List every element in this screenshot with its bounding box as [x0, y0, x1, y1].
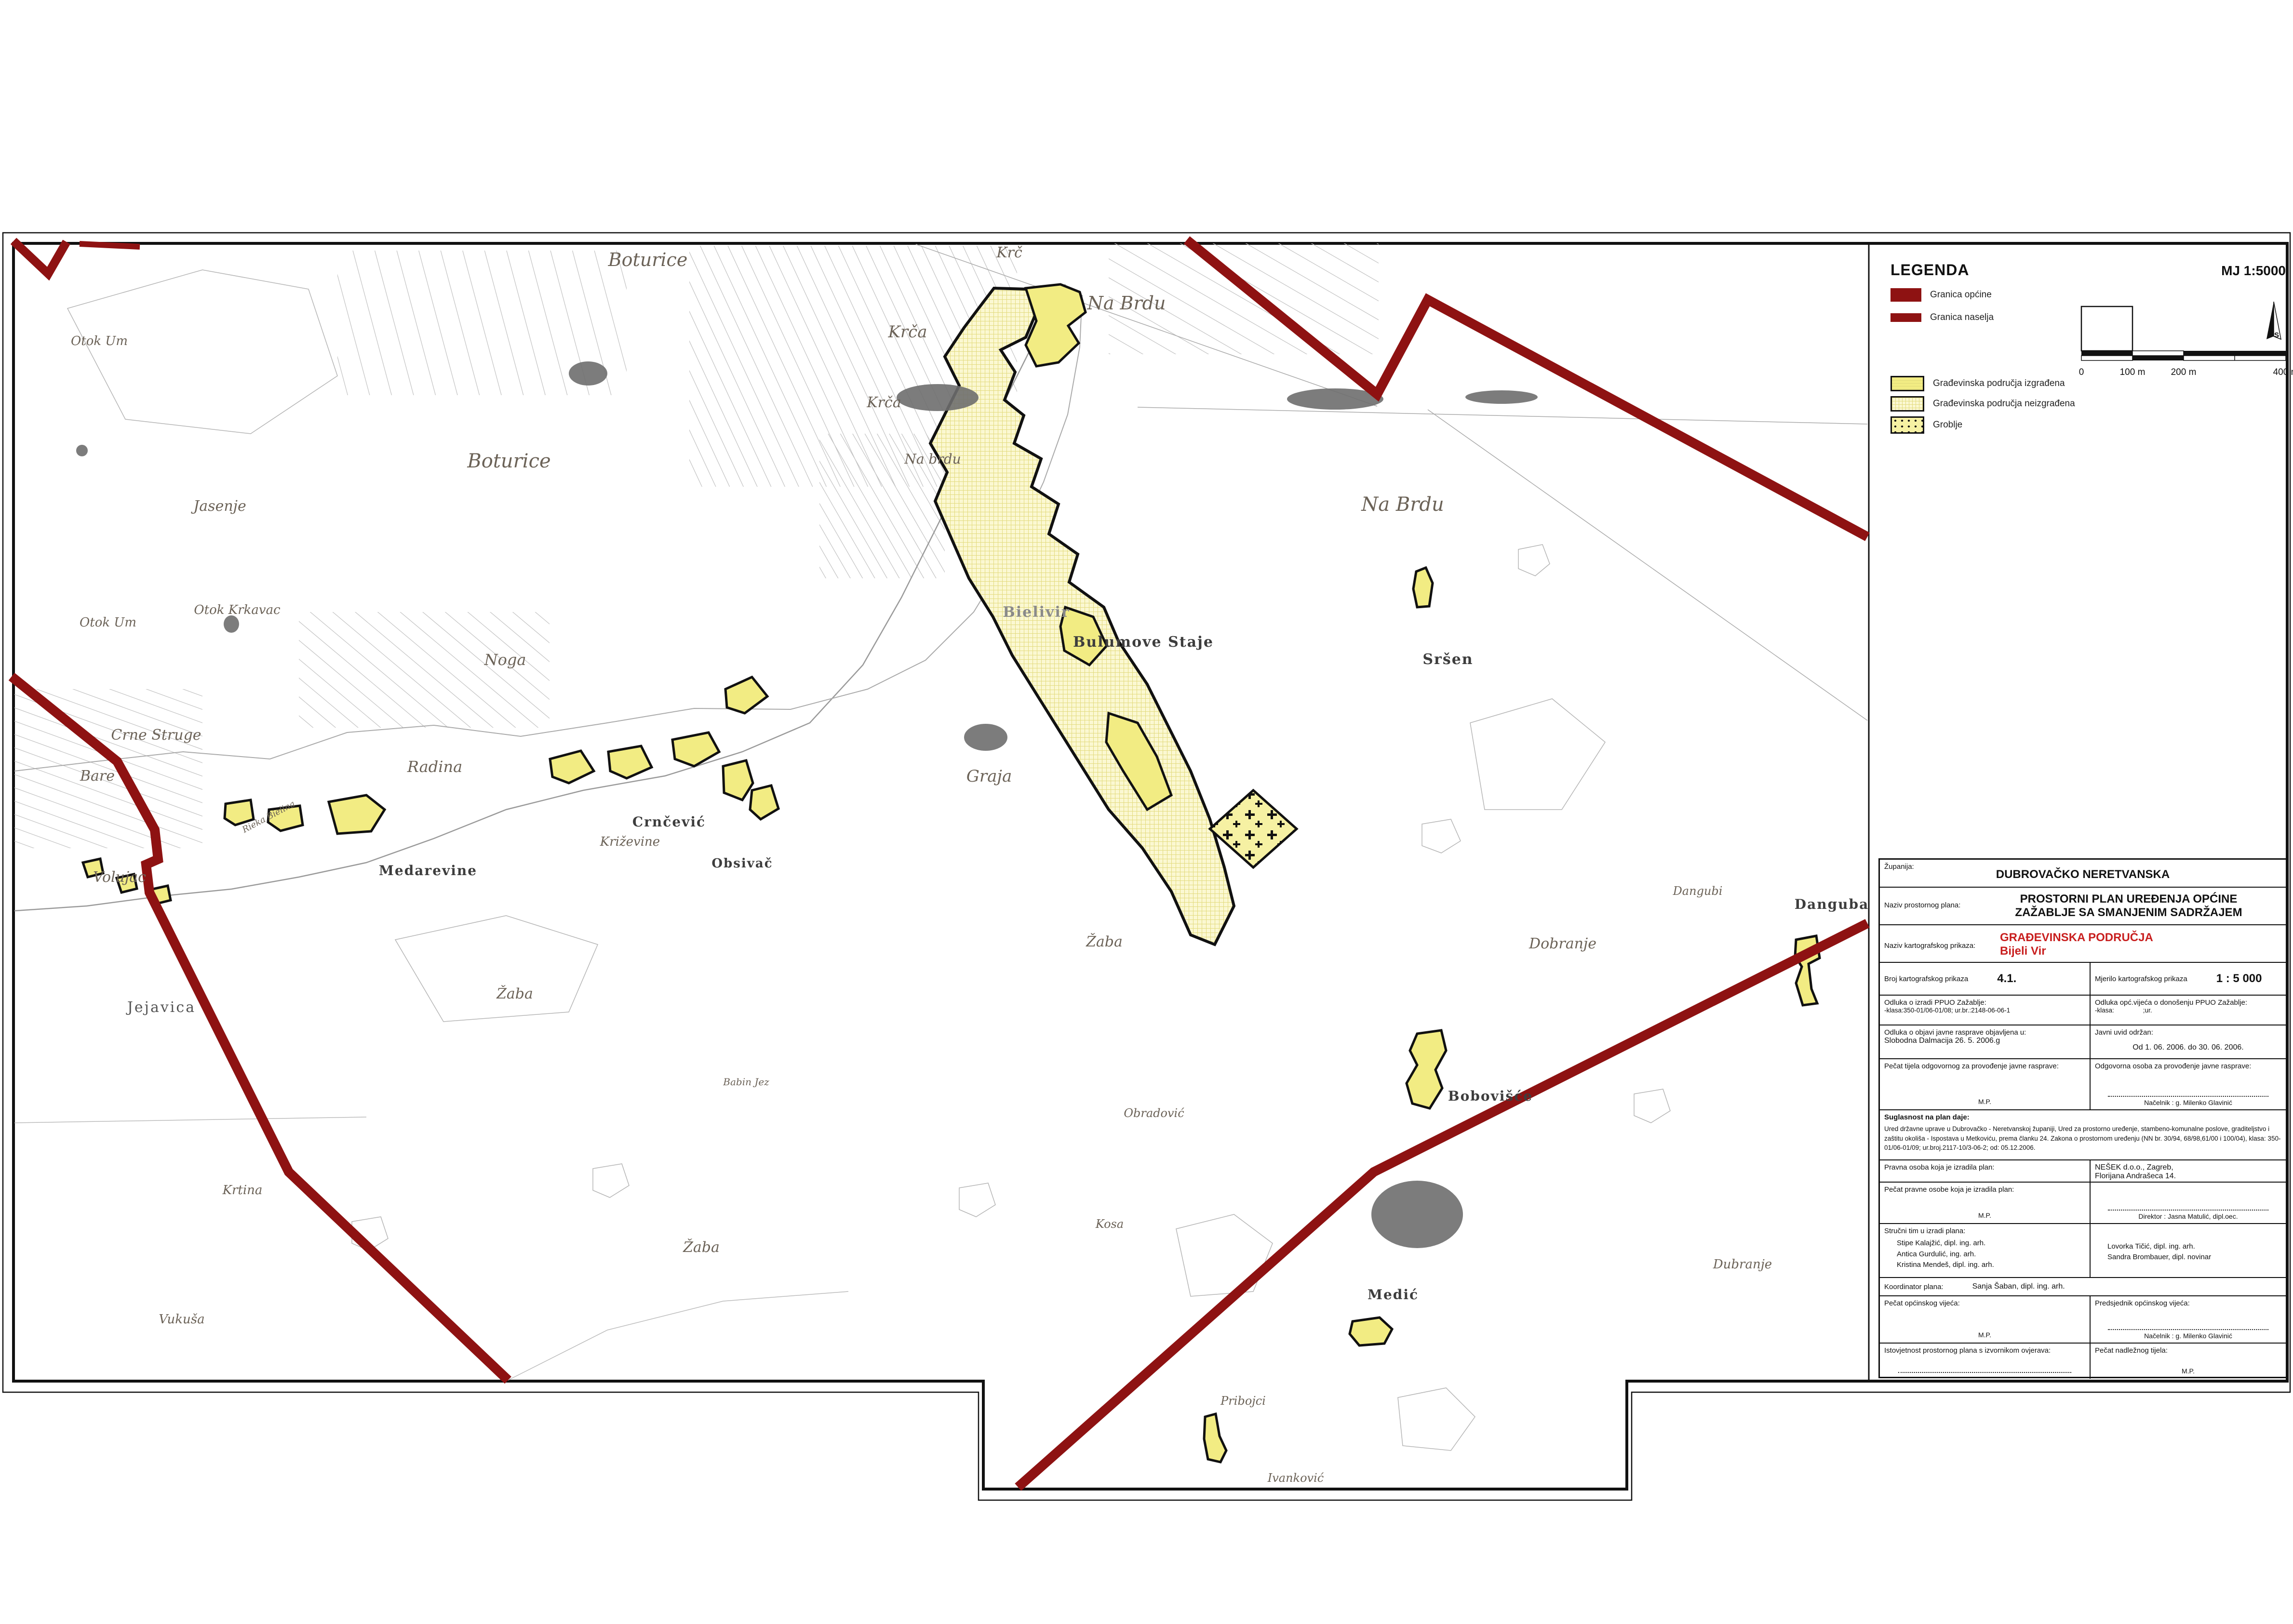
map-label: Bare [80, 768, 115, 785]
legend-item-groblje: Groblje [1891, 416, 1962, 434]
map-label: Krtina [222, 1183, 263, 1198]
map-label: Na Brdu [1361, 493, 1444, 516]
suglasnost-label: Suglasnost na plan daje: [1884, 1113, 2281, 1121]
predsjednik-label: Predsjednik općinskog vijeća: [2095, 1299, 2281, 1307]
team-member-name: Sandra Brombauer, dipl. novinar [2107, 1252, 2281, 1263]
naziv-plana-line1: PROSTORNI PLAN UREĐENJA OPĆINE [1976, 892, 2281, 906]
table-row: Istovjetnost prostornog plana s izvornik… [1880, 1344, 2286, 1379]
istovjetnost-label: Istovjetnost prostornog plana s izvornik… [1884, 1346, 2085, 1355]
map-label: Crne Struge [111, 727, 201, 744]
stamp-placeholder: M.P. [1884, 1211, 2085, 1220]
parcel-outline [1470, 699, 1605, 810]
table-row: Broj kartografskog prikaza 4.1. Mjerilo … [1880, 963, 2286, 996]
stamp-placeholder: M.P. [2095, 1367, 2281, 1376]
map-label: Žaba [496, 985, 533, 1002]
built-area-polygon [750, 785, 778, 819]
map-label: Sršen [1422, 651, 1473, 668]
pecat-tijela-label: Pečat nadležnog tijela: [2095, 1346, 2281, 1355]
map-label: Graja [966, 767, 1012, 786]
legend-scale-ratio: MJ 1:5000 [2159, 263, 2286, 279]
map-canvas: BoturiceKrčNa BrduKrčaKrčaNa brduBielivi… [0, 0, 2293, 1624]
pravna-line1: NEŠEK d.o.o., Zagreb, [2095, 1163, 2281, 1172]
nacelnik-name: Načelnik : g. Milenko Glavinić [2095, 1099, 2281, 1106]
map-label: Dangubi [1673, 884, 1723, 898]
legend-item-label: Građevinska područja izgrađena [1933, 378, 2065, 389]
map-label: Medić [1368, 1287, 1419, 1303]
mjerilo-label: Mjerilo kartografskog prikaza [2095, 975, 2187, 983]
signature-line [2108, 1210, 2268, 1211]
naziv-plana-label: Naziv prostornog plana: [1884, 901, 1960, 909]
map-label: Otok Um [71, 334, 128, 348]
naziv-prikaza-line1: GRAĐEVINSKA PODRUČJA [2000, 931, 2281, 945]
odluka-donosenje-value: -klasa: ;ur. [2095, 1007, 2281, 1014]
map-label: Radina [407, 758, 462, 776]
map-label: Križevine [600, 835, 660, 849]
built-area-polygon [1350, 1318, 1392, 1345]
map-label: Kosa [1095, 1217, 1124, 1231]
grey-terrain-blob [897, 384, 979, 411]
legend-item-label: Građevinska područja neizgrađena [1933, 399, 2075, 409]
table-row: Suglasnost na plan daje: Ured državne up… [1880, 1110, 2286, 1160]
signature-line [1898, 1372, 2071, 1373]
map-label: Jejavica [126, 999, 196, 1016]
legend-item-label: Groblje [1933, 420, 1962, 430]
stamp-placeholder: M.P. [1884, 1098, 2085, 1106]
mjerilo-value: 1 : 5 000 [2216, 972, 2262, 985]
odluka-donosenje-label: Odluka opć.vijeća o donošenju PPUO Zažab… [2095, 998, 2281, 1007]
table-row: Pečat tijela odgovornog za provođenje ja… [1880, 1059, 2286, 1110]
map-label: Bielivir [1003, 604, 1070, 621]
parcel-outline [1422, 819, 1461, 853]
legend-item-granica-naselja: Granica naselja [1891, 312, 1994, 323]
map-road-line [1138, 407, 1867, 424]
municipal-boundary [80, 244, 140, 247]
suglasnost-text: Ured državne uprave u Dubrovačko - Neret… [1884, 1124, 2281, 1153]
map-label: Pribojci [1220, 1394, 1266, 1408]
odluka-izrada-label: Odluka o izradi PPUO Zažablje: [1884, 998, 2085, 1007]
parcel-outline [1398, 1388, 1475, 1451]
objava-value: Slobodna Dalmacija 26. 5. 2006.g [1884, 1037, 2085, 1045]
map-layers: BoturiceKrčNa BrduKrčaKrčaNa brduBielivi… [0, 0, 1869, 1487]
parcel-outline [1634, 1089, 1670, 1123]
map-label: Boturice [608, 249, 688, 270]
koordinator-label: Koordinator plana: [1884, 1283, 1944, 1291]
hatch-lines [90, 0, 1616, 1125]
municipal-boundary [13, 241, 67, 274]
map-road-line [14, 1117, 366, 1123]
map-label: Na Brdu [1087, 293, 1166, 314]
map-label: Krč [996, 244, 1022, 261]
map-label: Volujac [93, 869, 146, 886]
team-member-name: Kristina Mendeš, dipl. ing. arh. [1897, 1260, 2085, 1271]
cemetery-area [1210, 790, 1297, 867]
objava-label: Odluka o objavi javne rasprave objavljen… [1884, 1028, 2085, 1037]
built-area-polygon [1413, 568, 1433, 607]
legend-item-label: Granica naselja [1930, 312, 1994, 323]
tim-label: Stručni tim u izradi plana: [1884, 1227, 2085, 1235]
municipal-boundary [1187, 240, 1867, 537]
legend-item-izgradena: Građevinska područja izgrađena [1891, 376, 2065, 391]
uvid-label: Javni uvid održan: [2095, 1028, 2281, 1037]
zupanija-value: DUBROVAČKO NERETVANSKA [1884, 868, 2281, 881]
tim-right-names: Lovorka Tičić, dipl. ing. arh.Sandra Bro… [2107, 1241, 2281, 1263]
naziv-prikaza-label: Naziv kartografskog prikaza: [1884, 942, 1975, 950]
hatch-lines [0, 146, 947, 1193]
table-row: Koordinator plana: Sanja Šaban, dipl. in… [1880, 1278, 2286, 1296]
built-area-swatch [1891, 376, 1924, 391]
map-label: Otok Um [80, 615, 136, 630]
map-label: Jasenje [190, 498, 246, 515]
built-area-polygon [1026, 284, 1086, 366]
map-label: Krča [866, 394, 901, 411]
table-row: Pečat općinskog vijeća: M.P. Predsjednik… [1880, 1296, 2286, 1344]
team-member-name: Antica Gurdulić, ing. arh. [1897, 1249, 2085, 1260]
parcel-outline [1176, 1214, 1273, 1296]
map-label: Danguba [1795, 896, 1869, 912]
grey-terrain-blob [964, 724, 1007, 751]
grey-terrain-blob [76, 445, 88, 456]
map-label: Žaba [1086, 933, 1123, 950]
map-label: Dubranje [1713, 1257, 1772, 1272]
legend-item-label: Granica općine [1930, 290, 1992, 300]
map-label: Obradović [1124, 1106, 1184, 1120]
parcel-outline [67, 270, 337, 434]
broj-label: Broj kartografskog prikaza [1884, 975, 1968, 983]
uvid-value: Od 1. 06. 2006. do 30. 06. 2006. [2095, 1043, 2281, 1052]
map-label: Medarevine [379, 863, 477, 879]
map-label: Vukuša [159, 1312, 204, 1327]
scalebar-tick-100: 100 m [2120, 367, 2145, 377]
signature-line [2108, 1329, 2268, 1330]
map-label: Krča [888, 322, 927, 342]
grey-terrain-blob [224, 615, 239, 633]
pecat-pravne-label: Pečat pravne osobe koja je izradila plan… [1884, 1185, 2085, 1194]
map-road-line [14, 284, 1065, 911]
legend-item-granica-opcine: Granica općine [1891, 288, 1992, 302]
signature-line [2108, 1096, 2268, 1097]
pecat-vijeca-label: Pečat općinskog vijeća: [1884, 1299, 2085, 1307]
built-area-polygon [725, 677, 767, 713]
map-label: Dobranje [1529, 935, 1596, 952]
legend-item-neizgradena: Građevinska područja neizgrađena [1891, 396, 2075, 412]
direktor-name: Direktor : Jasna Matulić, dipl.oec. [2095, 1212, 2281, 1220]
map-label: Crnčević [632, 814, 706, 830]
scalebar-tick-200: 200 m [2171, 367, 2197, 377]
map-sheet: BoturiceKrčNa BrduKrčaKrčaNa brduBielivi… [0, 0, 2293, 1624]
map-label: Boturice [467, 450, 550, 472]
scalebar-tick-400: 400 m [2273, 367, 2293, 377]
map-label: Noga [484, 651, 526, 669]
built-area-polygon [329, 795, 385, 834]
map-road-line [1428, 410, 1867, 720]
parcel-outline [395, 916, 598, 1022]
map-label: Bulumove Staje [1073, 634, 1214, 651]
map-road-line [508, 1291, 848, 1380]
parcel-outline [1518, 545, 1550, 576]
stamp-placeholder: M.P. [1884, 1331, 2085, 1340]
team-member-name: Lovorka Tičić, dipl. ing. arh. [2107, 1241, 2281, 1252]
hatch-lines [717, 0, 1770, 830]
parcel-outline [959, 1183, 995, 1217]
built-area-polygon [1204, 1414, 1226, 1462]
built-area-polygon [723, 760, 753, 800]
grey-terrain-blob [1465, 390, 1538, 404]
unbuilt-area-swatch [1891, 396, 1924, 412]
cemetery-swatch [1891, 416, 1924, 434]
scalebar-tick-0: 0 [2079, 367, 2084, 377]
settlement-boundary-swatch [1891, 313, 1921, 322]
title-block-table: Županija: DUBROVAČKO NERETVANSKA Naziv p… [1878, 858, 2287, 1378]
pecat-rasprava-label: Pečat tijela odgovornog za provođenje ja… [1884, 1062, 2085, 1070]
grey-terrain-blob [569, 361, 607, 386]
table-row: Odluka o izradi PPUO Zažablje: -klasa:35… [1880, 996, 2286, 1025]
team-member-name: Stipe Kalajžić, dipl. ing. arh. [1897, 1238, 2085, 1249]
map-label: Žaba [683, 1238, 720, 1256]
odgovorna-label: Odgovorna osoba za provođenje javne rasp… [2095, 1062, 2281, 1070]
naziv-plana-line2: ZAŽABLJE SA SMANJENIM SADRŽAJEM [1976, 906, 2281, 919]
map-label: Na brdu [904, 451, 961, 467]
table-row: Pravna osoba koja je izradila plan: NEŠE… [1880, 1160, 2286, 1183]
north-arrow-label: S [2274, 331, 2279, 339]
scale-bar: 0 100 m 200 m 400 m [2079, 306, 2293, 377]
built-area-polygon [1407, 1030, 1446, 1108]
parcel-outline [593, 1164, 629, 1198]
broj-value: 4.1. [1997, 972, 2016, 985]
table-row: Odluka o objavi javne rasprave objavljen… [1880, 1025, 2286, 1059]
nacelnik-name: Načelnik : g. Milenko Glavinić [2095, 1332, 2281, 1340]
built-area-polygon [608, 746, 652, 778]
table-row: Županija: DUBROVAČKO NERETVANSKA [1880, 860, 2286, 888]
koordinator-name: Sanja Šaban, dipl. ing. arh. [1972, 1282, 2065, 1291]
grey-terrain-blob [1371, 1181, 1463, 1248]
map-label: Bobovišće [1448, 1088, 1533, 1104]
table-row: Naziv prostornog plana: PROSTORNI PLAN U… [1880, 888, 2286, 925]
table-row: Naziv kartografskog prikaza: GRAĐEVINSKA… [1880, 925, 2286, 963]
odluka-izrada-value: -klasa:350-01/06-01/08; ur.br.:2148-06-0… [1884, 1007, 2085, 1014]
map-label: Otok Krkavac [194, 603, 281, 617]
table-row: Pečat pravne osobe koja je izradila plan… [1880, 1183, 2286, 1224]
tim-left-names: Stipe Kalajžić, dipl. ing. arh.Antica Gu… [1897, 1238, 2085, 1271]
pravna-label: Pravna osoba koja je izradila plan: [1884, 1163, 2085, 1171]
built-area-polygon [550, 751, 594, 783]
table-row: Stručni tim u izradi plana: Stipe Kalajž… [1880, 1224, 2286, 1278]
map-label: Babin Jez [723, 1076, 769, 1088]
map-label: Obsivač [711, 856, 773, 871]
pravna-line2: Florijana Andrašeca 14. [2095, 1172, 2281, 1181]
north-arrow-icon: S [2266, 302, 2281, 339]
naziv-prikaza-line2: Bijeli Vir [2000, 945, 2281, 958]
map-label: Ivanković [1267, 1471, 1324, 1485]
legend-title: LEGENDA [1891, 261, 1969, 279]
municipal-boundary-swatch [1891, 288, 1921, 302]
